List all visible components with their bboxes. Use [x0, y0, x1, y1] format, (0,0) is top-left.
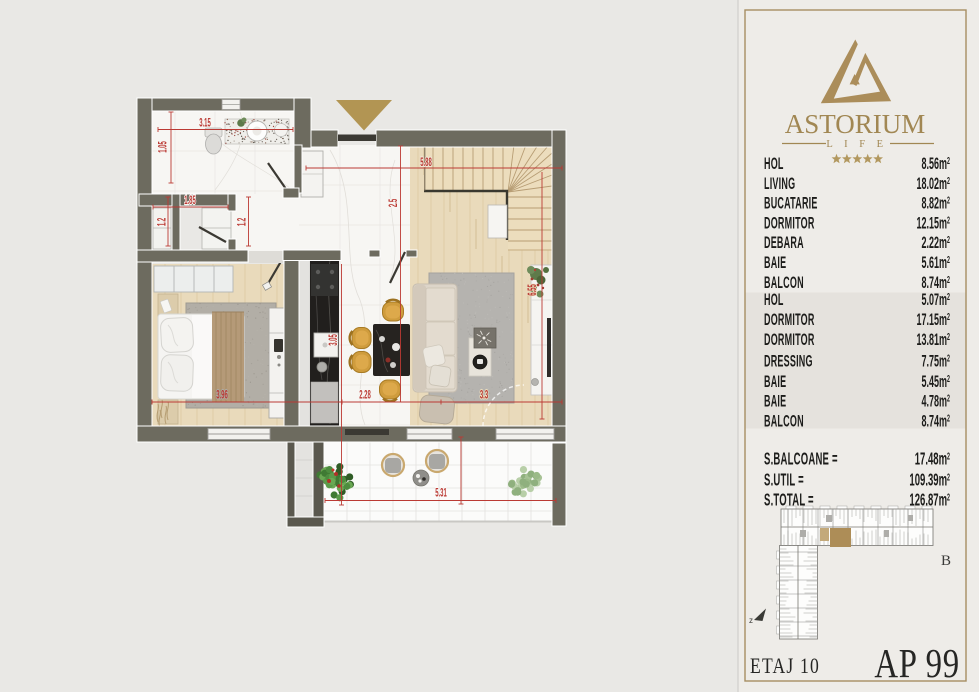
svg-text:BAIE: BAIE — [764, 372, 786, 391]
svg-text:HOL: HOL — [764, 290, 784, 309]
svg-text:L I F E: L I F E — [826, 139, 887, 150]
svg-text:HOL: HOL — [764, 154, 784, 173]
svg-text:1.2: 1.2 — [235, 218, 248, 226]
svg-text:DORMITOR: DORMITOR — [764, 310, 815, 329]
svg-text:ASTORIUM: ASTORIUM — [785, 109, 926, 139]
svg-text:12.15m2: 12.15m2 — [917, 213, 951, 232]
svg-text:5.31: 5.31 — [435, 486, 447, 499]
svg-text:6.55: 6.55 — [526, 284, 539, 296]
svg-text:z: z — [749, 616, 753, 625]
svg-text:DEBARA: DEBARA — [764, 233, 804, 252]
svg-text:3.15: 3.15 — [199, 116, 211, 129]
svg-text:3.96: 3.96 — [216, 388, 228, 401]
svg-text:2.22m2: 2.22m2 — [922, 233, 951, 252]
svg-text:S.UTIL =: S.UTIL = — [764, 470, 804, 490]
svg-text:BUCATARIE: BUCATARIE — [764, 194, 818, 213]
svg-text:BALCON: BALCON — [764, 411, 804, 430]
svg-text:DORMITOR: DORMITOR — [764, 330, 815, 349]
svg-text:3.3: 3.3 — [480, 388, 488, 401]
svg-text:AP 99: AP 99 — [874, 642, 960, 687]
svg-text:109.39m2: 109.39m2 — [909, 470, 950, 490]
svg-text:BAIE: BAIE — [764, 392, 786, 411]
svg-text:8.74m2: 8.74m2 — [922, 411, 951, 430]
svg-text:LIVING: LIVING — [764, 174, 795, 193]
svg-text:5.45m2: 5.45m2 — [922, 372, 951, 391]
svg-text:1.2: 1.2 — [155, 218, 168, 226]
svg-text:7.75m2: 7.75m2 — [922, 352, 951, 371]
svg-text:5.88: 5.88 — [420, 156, 432, 169]
svg-text:2.5: 2.5 — [387, 199, 400, 207]
svg-text:4.78m2: 4.78m2 — [922, 392, 951, 411]
svg-text:BAIE: BAIE — [764, 253, 786, 272]
svg-text:5.61m2: 5.61m2 — [922, 253, 951, 272]
svg-text:8.74m2: 8.74m2 — [922, 273, 951, 292]
svg-text:3.05: 3.05 — [327, 334, 340, 346]
svg-text:2.28: 2.28 — [359, 388, 371, 401]
svg-text:1.85: 1.85 — [184, 194, 196, 207]
svg-text:8.56m2: 8.56m2 — [922, 154, 951, 173]
svg-text:5.07m2: 5.07m2 — [922, 290, 951, 309]
svg-text:8.82m2: 8.82m2 — [922, 194, 951, 213]
svg-text:BALCON: BALCON — [764, 273, 804, 292]
svg-text:17.48m2: 17.48m2 — [915, 450, 951, 470]
svg-text:S.BALCOANE =: S.BALCOANE = — [764, 450, 838, 470]
svg-text:DORMITOR: DORMITOR — [764, 213, 815, 232]
svg-text:B: B — [941, 553, 951, 569]
svg-text:18.02m2: 18.02m2 — [917, 174, 951, 193]
svg-text:17.15m2: 17.15m2 — [917, 310, 951, 329]
svg-text:DRESSING: DRESSING — [764, 352, 813, 371]
svg-text:ETAJ 10: ETAJ 10 — [750, 654, 820, 678]
svg-text:13.81m2: 13.81m2 — [917, 330, 951, 349]
svg-text:1.05: 1.05 — [156, 141, 169, 153]
